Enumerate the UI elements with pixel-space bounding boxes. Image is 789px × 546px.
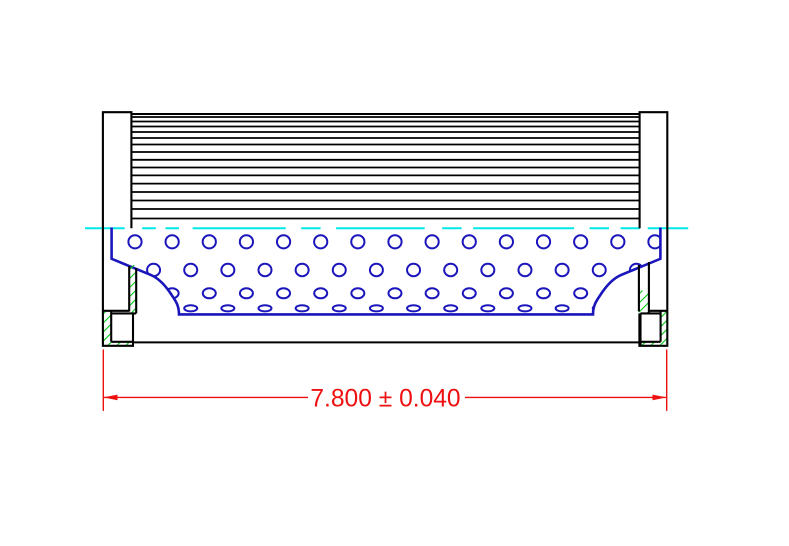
svg-text:7.800 ± 0.040: 7.800 ± 0.040 (310, 385, 460, 412)
